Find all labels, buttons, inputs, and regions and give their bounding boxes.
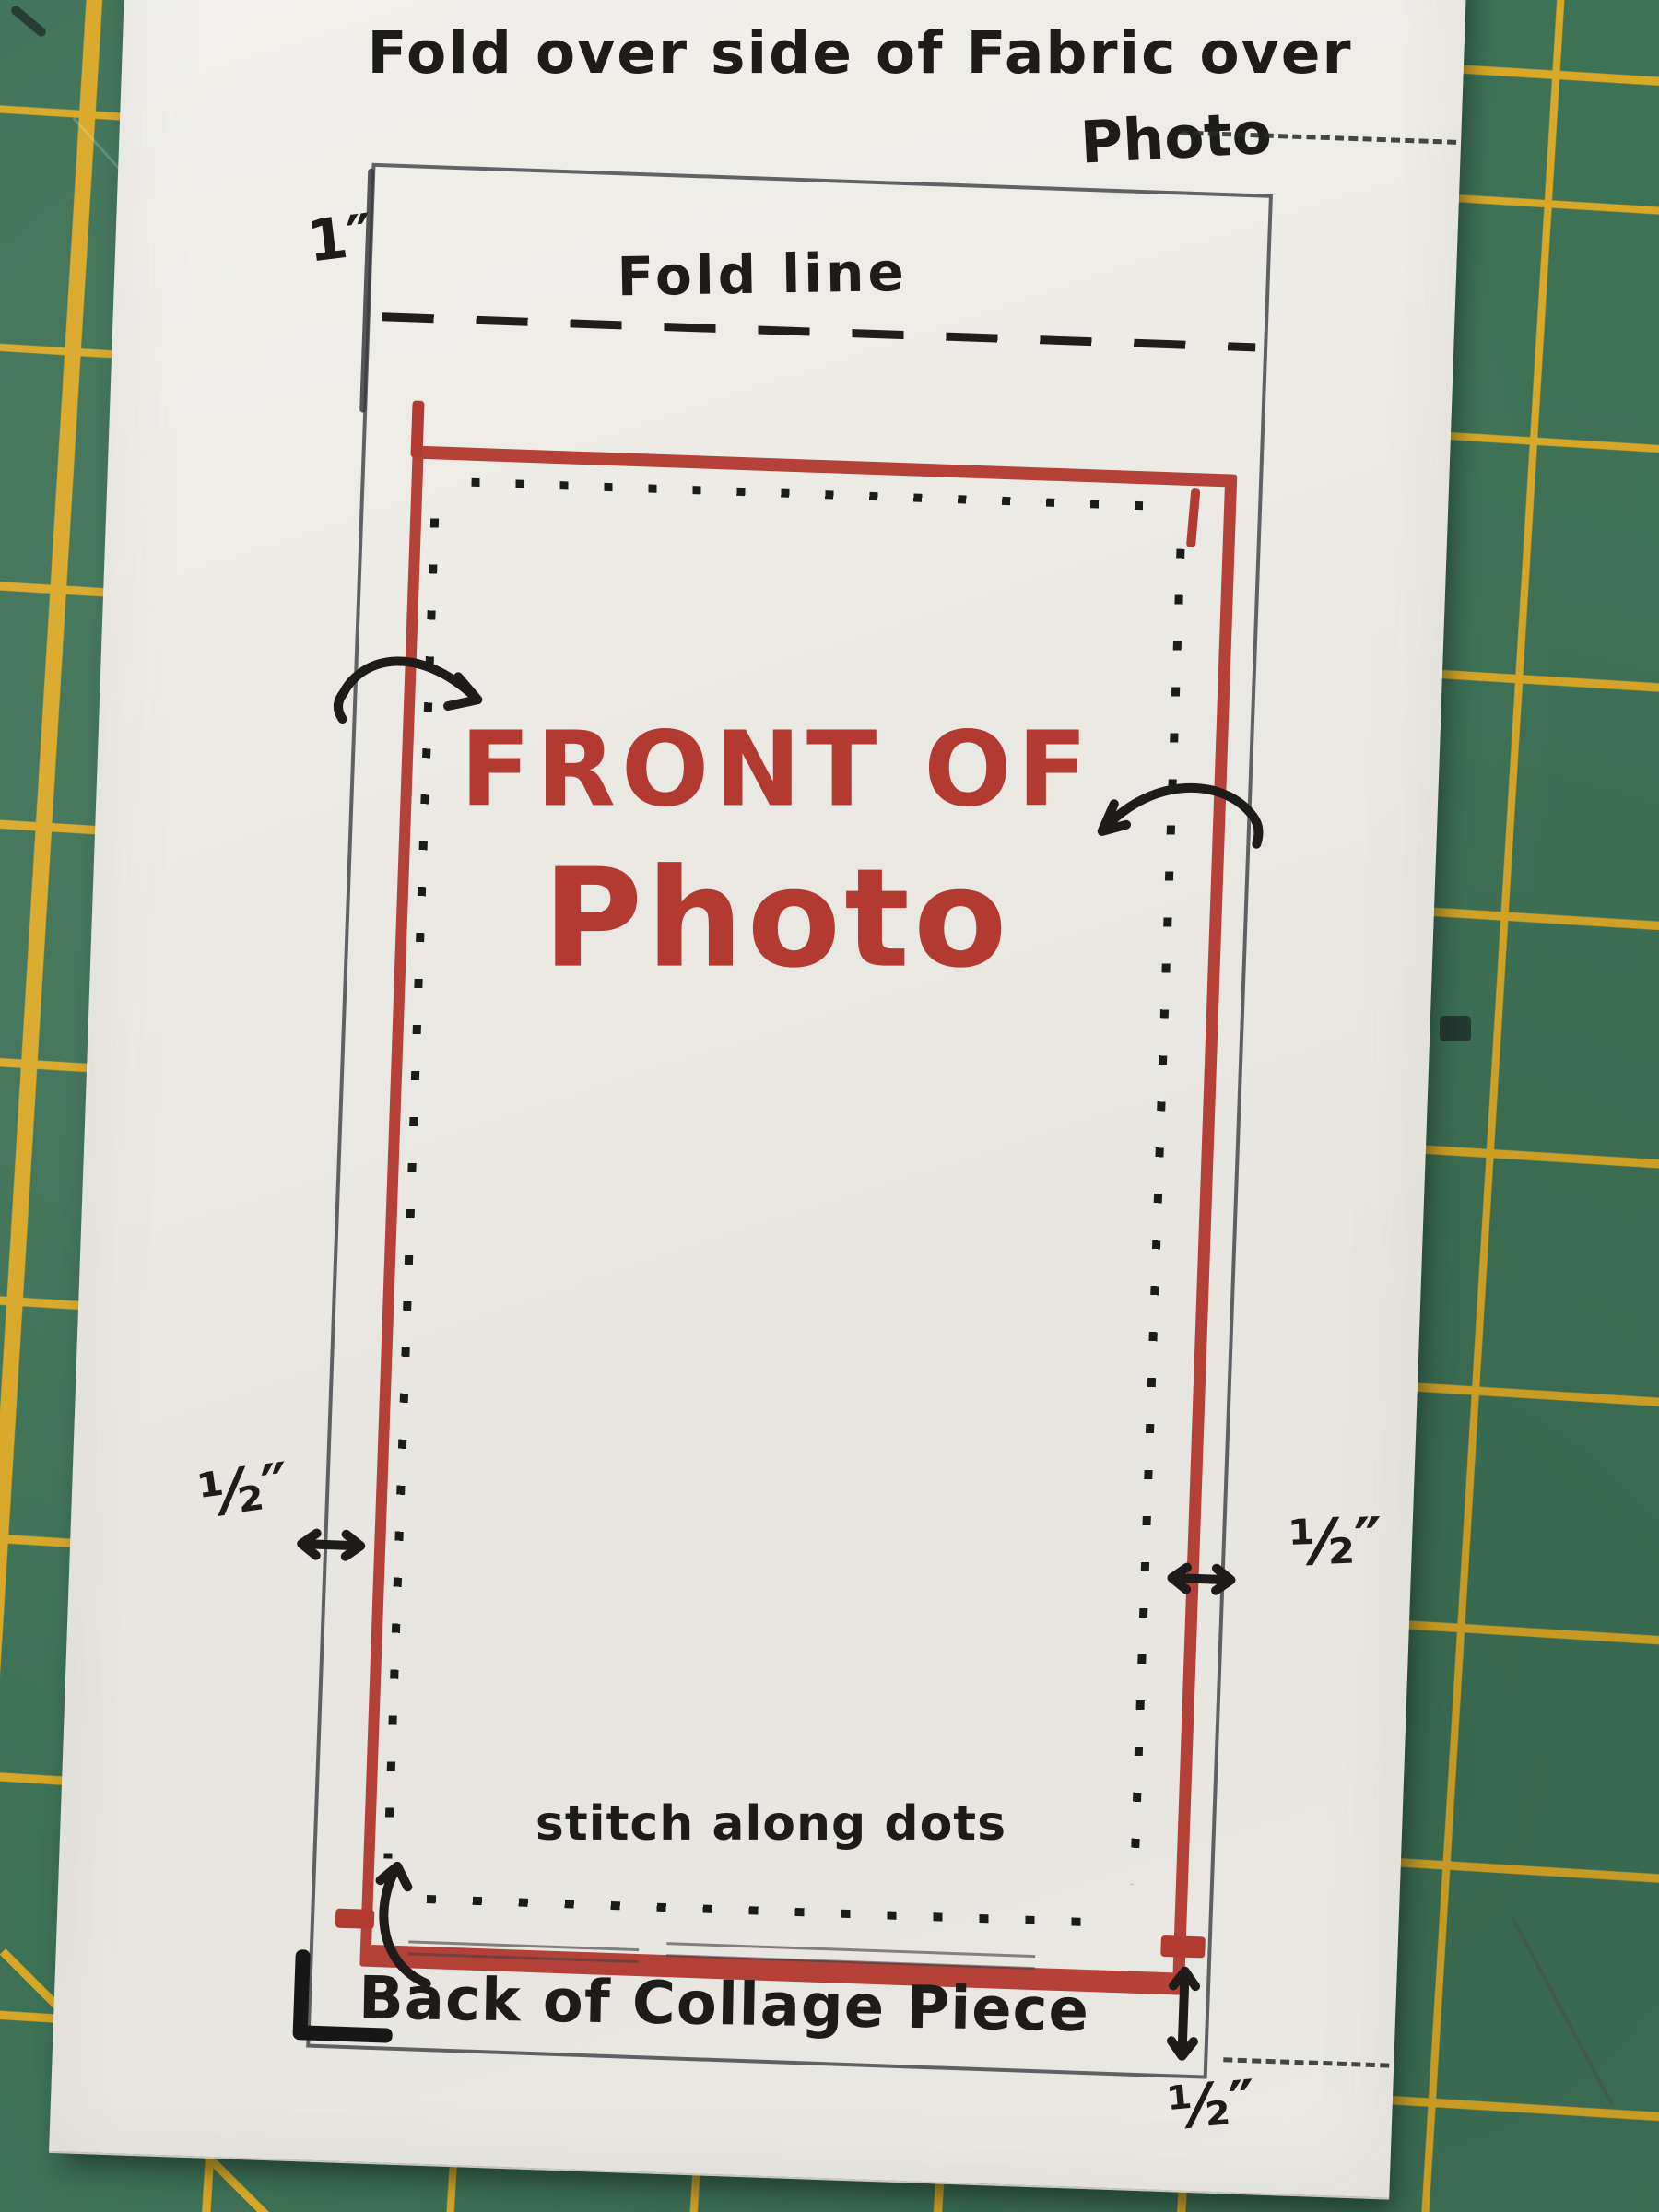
curved-arrow-right-icon	[1064, 770, 1265, 887]
double-arrow-horizontal-right-icon	[1164, 1559, 1239, 1599]
half-inch-right-label: ½″	[1288, 1504, 1383, 1580]
red-corner-stub	[410, 400, 424, 457]
front-of-photo-label: FRONT OF Photo	[418, 711, 1136, 998]
back-of-collage-label: Back of Collage Piece	[358, 1964, 1188, 2047]
pattern-paper-sheet: Fold over side of Fabric over Photo 1″ F…	[49, 0, 1467, 2200]
stitch-along-dots-label: stitch along dots	[535, 1796, 1006, 1852]
curved-arrow-left-icon	[328, 638, 507, 755]
curled-corner-arrow-icon	[361, 1851, 449, 1992]
photo-of-pattern-diagram: Fold over side of Fabric over Photo 1″ F…	[0, 0, 1659, 2212]
front-label-line1: FRONT OF	[418, 711, 1136, 830]
top-note-line1: Fold over side of Fabric over	[339, 19, 1381, 87]
top-note-line2: Photo	[1078, 100, 1273, 177]
red-corner-stub	[1160, 1935, 1206, 1959]
bottom-dashed-guide-line	[1223, 2057, 1389, 2067]
double-arrow-vertical-icon	[1161, 1965, 1206, 2062]
mat-ink-mark	[1440, 1016, 1471, 1041]
front-label-line2: Photo	[418, 840, 1136, 998]
half-inch-left-label: ½″	[194, 1449, 294, 1532]
half-inch-bottom-label: ½″	[1166, 2068, 1259, 2144]
double-arrow-horizontal-left-icon	[294, 1525, 369, 1565]
fold-line-label: Fold line	[617, 241, 908, 308]
